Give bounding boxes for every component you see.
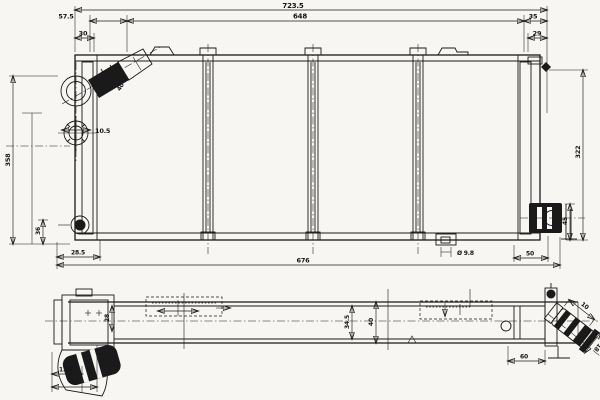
drawing-canvas: 723.5 57.5 648 35 30 29 358 [0,0,600,400]
dim-drain-offset: 36 [35,227,42,235]
lower-port [58,62,96,162]
dim-overall-width: 723.5 [282,2,303,10]
dim-overall-thickness: 40 [368,318,375,326]
dim-core-height: 322 [574,146,582,159]
front-dimensions: 723.5 57.5 648 35 30 29 358 [4,2,588,269]
front-view: 723.5 57.5 648 35 30 29 358 [4,2,588,269]
side-outlet-pipe: 10 18 [543,289,600,360]
note-box-1 [146,297,230,316]
side-view: 10 18 13.5 42 28 34.5 40 60 [45,283,600,396]
side-centerline [45,314,600,356]
datum-triangle [408,336,416,343]
core-outline [75,55,540,240]
inlet-hose-dark-section [88,62,129,98]
bracket-centerlines [6,44,418,254]
tube-row-left [82,62,93,234]
dim-left-offset: 57.5 [58,13,74,21]
dim-bracket-width: 60 [520,354,528,361]
dim-mount-hole: Ø 9.8 [457,250,474,257]
dim-core-thickness: 34.5 [344,315,351,329]
dim-left-inset: 30 [79,30,88,38]
dim-hose-offset: 13.5 [59,367,73,374]
dim-outlet-height: 45 [562,217,569,225]
top-clip-right [438,48,468,55]
side-bar-outline [68,302,578,343]
dim-core-width: 648 [293,13,307,21]
section-ticks [85,289,470,350]
dim-hose-end: 42 [70,380,78,387]
dim-bracket-span: 676 [297,257,311,265]
dim-outlet-stub: 10 [579,301,590,311]
dim-outlet-offset: 50 [526,251,534,258]
dim-flange-depth: 28 [104,314,111,322]
top-right-marker [541,62,551,72]
radiator-technical-drawing: 723.5 57.5 648 35 30 29 358 [0,0,600,400]
drain-plug [58,216,89,234]
dim-tube-offset: 10.5 [95,127,111,135]
dim-overall-height: 358 [4,153,12,167]
dim-right-offset: 35 [529,13,538,21]
dim-bottom-left-offset: 28.5 [71,250,85,257]
side-dimensions: 13.5 42 28 34.5 40 60 [52,302,545,392]
dim-right-inset: 29 [533,30,542,38]
note-box-2 [420,301,492,319]
